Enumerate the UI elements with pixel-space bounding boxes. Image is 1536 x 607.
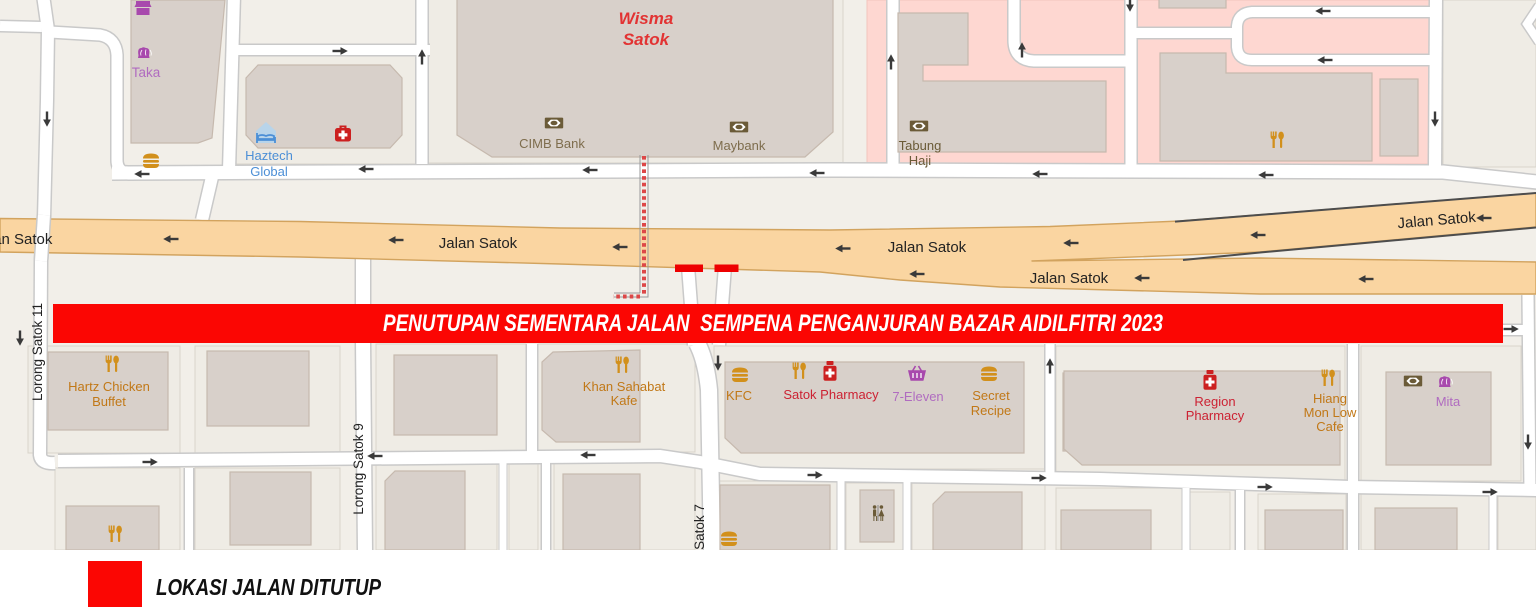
svg-text:Satok Pharmacy: Satok Pharmacy xyxy=(783,387,879,402)
svg-text:Hiang: Hiang xyxy=(1313,391,1347,406)
svg-text:Buffet: Buffet xyxy=(92,394,126,409)
svg-text:Pharmacy: Pharmacy xyxy=(1186,408,1245,423)
svg-text:Kafe: Kafe xyxy=(611,393,638,408)
svg-text:Tabung: Tabung xyxy=(899,138,942,153)
svg-text:7-Eleven: 7-Eleven xyxy=(892,389,943,404)
svg-text:Hartz Chicken: Hartz Chicken xyxy=(68,379,150,394)
svg-text:CIMB Bank: CIMB Bank xyxy=(519,136,585,151)
svg-text:KFC: KFC xyxy=(726,388,752,403)
svg-text:Region: Region xyxy=(1194,394,1235,409)
svg-text:PENUTUPAN SEMENTARA JALAN SEM: PENUTUPAN SEMENTARA JALAN SEMPENA PENGAN… xyxy=(383,310,1164,337)
svg-text:Global: Global xyxy=(250,164,288,179)
svg-text:Maybank: Maybank xyxy=(713,138,766,153)
svg-text:Lorong Satok 11: Lorong Satok 11 xyxy=(30,303,45,401)
svg-text:Jalan Satok: Jalan Satok xyxy=(0,231,53,248)
svg-text:Jalan Satok: Jalan Satok xyxy=(1030,270,1109,287)
svg-text:Taka: Taka xyxy=(132,65,161,80)
svg-text:Khan Sahabat: Khan Sahabat xyxy=(583,379,666,394)
svg-text:LOKASI JALAN DITUTUP: LOKASI JALAN DITUTUP xyxy=(156,574,382,600)
svg-text:Mita: Mita xyxy=(1436,394,1461,409)
svg-text:Haztech: Haztech xyxy=(245,148,293,163)
svg-text:Jalan Satok: Jalan Satok xyxy=(888,239,967,256)
svg-text:Recipe: Recipe xyxy=(971,403,1011,418)
svg-text:Wisma: Wisma xyxy=(619,9,674,28)
svg-text:Haji: Haji xyxy=(909,153,932,168)
svg-text:Cafe: Cafe xyxy=(1316,419,1343,434)
svg-text:Mon Low: Mon Low xyxy=(1304,405,1357,420)
svg-text:Satok: Satok xyxy=(623,30,671,49)
svg-text:Jalan Satok: Jalan Satok xyxy=(439,235,518,252)
svg-text:Satok 7: Satok 7 xyxy=(692,504,707,550)
svg-text:Secret: Secret xyxy=(972,388,1010,403)
svg-text:Lorong Satok 9: Lorong Satok 9 xyxy=(351,423,366,515)
